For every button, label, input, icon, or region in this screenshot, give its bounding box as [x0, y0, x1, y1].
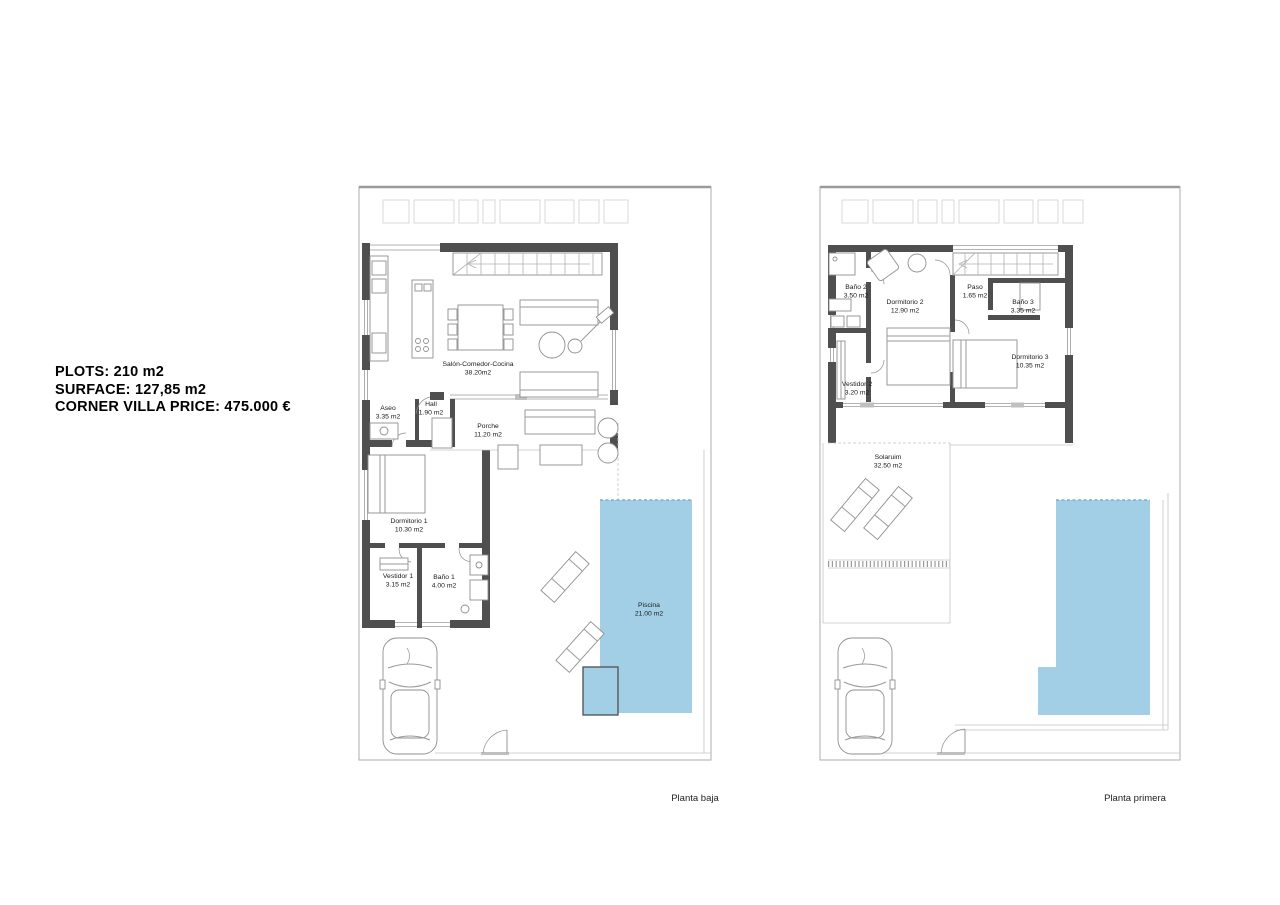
bed-icon: [368, 455, 425, 513]
room-label-bano3: Baño 33.35 m2: [1011, 299, 1036, 315]
sun-lounger-icon: [541, 552, 604, 673]
ground-floor-caption: Planta baja: [635, 793, 755, 804]
hedge-strip: [842, 200, 1083, 223]
room-label-bano2: Baño 23.50 m2: [844, 284, 869, 300]
hedge-strip: [383, 200, 628, 223]
room-label-aseo: Aseo3.35 m2: [376, 405, 401, 421]
room-label-piscina: Piscina21.00 m2: [635, 602, 664, 618]
room-label-salon: Salón-Comedor-Cocina38.20m2: [442, 361, 513, 377]
pool: [1038, 500, 1150, 715]
pool-step: [583, 667, 618, 715]
room-label-dormitorio1: Dormitorio 110.30 m2: [390, 518, 427, 534]
price-line: CORNER VILLA PRICE: 475.000 €: [55, 399, 291, 417]
room-label-solarium: Solaruim32.50 m2: [874, 454, 903, 470]
staircase: [453, 253, 602, 275]
first-floor-plan: Baño 23.50 m2 Dormitorio 212.90 m2 Paso1…: [815, 183, 1185, 768]
room-label-bano1: Baño 14.00 m2: [432, 574, 457, 590]
ground-floor-plan: Salón-Comedor-Cocina38.20m2 Aseo3.35 m2 …: [355, 183, 715, 768]
staircase: [953, 253, 1058, 275]
bed-icon: [866, 248, 950, 385]
dining-table-icon: [448, 305, 513, 350]
room-label-paso: Paso1.65 m2: [963, 284, 988, 300]
room-label-vestidor1: Vestidor 13.15 m2: [383, 573, 413, 589]
room-label-dormitorio3: Dormitorio 310.35 m2: [1011, 354, 1048, 370]
plots-line: PLOTS: 210 m2: [55, 364, 291, 382]
first-floor-caption: Planta primera: [1075, 793, 1195, 804]
room-label-vestidor2: Vestidor 23.20 m2: [842, 381, 872, 397]
room-label-hall: Hall1.90 m2: [419, 401, 444, 417]
sun-lounger-icon: [831, 479, 912, 540]
sofa-icon: [520, 300, 614, 397]
car-icon: [380, 638, 440, 754]
gate-icon: [937, 729, 965, 755]
floorplan-sheet: PLOTS: 210 m2 SURFACE: 127,85 m2 CORNER …: [0, 0, 1280, 905]
info-block: PLOTS: 210 m2 SURFACE: 127,85 m2 CORNER …: [55, 364, 291, 417]
pool-water: [1038, 500, 1150, 715]
porch-furniture-icon: [430, 410, 618, 469]
gate-icon: [481, 730, 509, 755]
solarium-area: [823, 443, 1073, 623]
car-icon: [835, 638, 895, 754]
surface-line: SURFACE: 127,85 m2: [55, 382, 291, 400]
room-label-porche: Porche11.20 m2: [474, 423, 502, 439]
room-label-dormitorio2: Dormitorio 212.90 m2: [886, 299, 923, 315]
kitchen-counter-icon: [370, 256, 433, 361]
